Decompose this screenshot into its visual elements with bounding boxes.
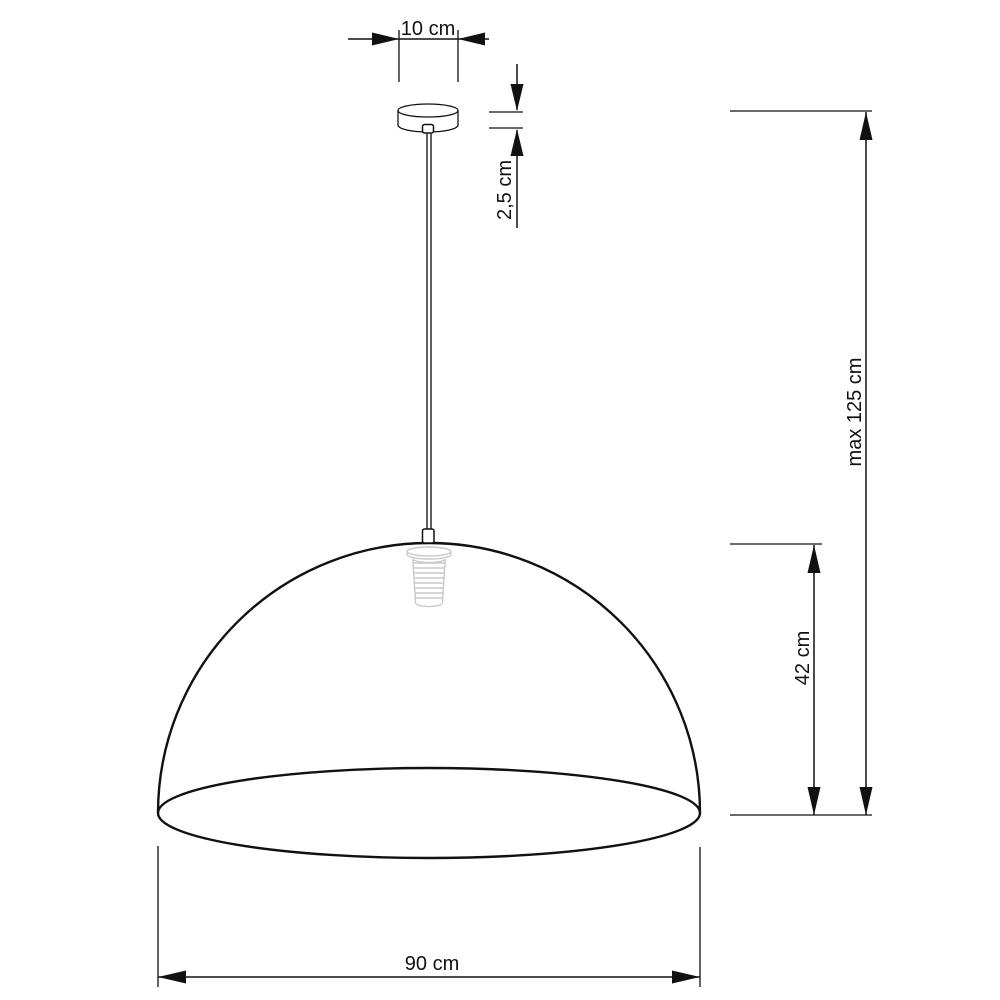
socket-bottom-arc (416, 603, 443, 607)
dim-canopy-height: 2,5 cm (489, 64, 524, 228)
shade-rim-ellipse (158, 768, 700, 858)
arrowhead-up-icon (808, 545, 821, 573)
arrowhead-up-icon (860, 112, 873, 140)
arrowhead-left-icon (458, 33, 485, 46)
arrowhead-right-icon (372, 33, 399, 46)
socket-body-left (413, 560, 416, 603)
dim-shade-height-label: 42 cm (792, 631, 814, 685)
arrowhead-right-icon (672, 971, 700, 984)
canopy-cable-grip (423, 125, 434, 134)
dim-max-height-label: max 125 cm (844, 358, 866, 467)
dim-max-height: max 125 cm (730, 111, 873, 815)
dim-canopy-width-label: 10 cm (401, 18, 455, 40)
lamp-dimension-diagram: 10 cm 2,5 cm max 125 cm 42 cm (0, 0, 1000, 1000)
socket-body-right (442, 560, 445, 603)
arrowhead-left-icon (158, 971, 186, 984)
socket-thread-lines (413, 563, 445, 598)
suspension-cable (427, 133, 431, 530)
canopy-top-ellipse (398, 104, 458, 117)
ceiling-canopy (398, 104, 458, 133)
dim-shade-width: 90 cm (158, 846, 700, 987)
dim-canopy-width: 10 cm (348, 18, 489, 82)
dim-canopy-height-label: 2,5 cm (494, 160, 516, 220)
diagram-canvas: 10 cm 2,5 cm max 125 cm 42 cm (0, 0, 1000, 1000)
bulb-socket (407, 547, 451, 607)
arrowhead-down-icon (808, 787, 821, 815)
socket-flange-top (407, 547, 451, 556)
dim-shade-width-label: 90 cm (405, 953, 459, 975)
shade-cable-grip (423, 529, 435, 543)
dim-shade-height: 42 cm (730, 544, 872, 815)
arrowhead-down-icon (511, 84, 524, 111)
arrowhead-down-icon (860, 787, 873, 815)
